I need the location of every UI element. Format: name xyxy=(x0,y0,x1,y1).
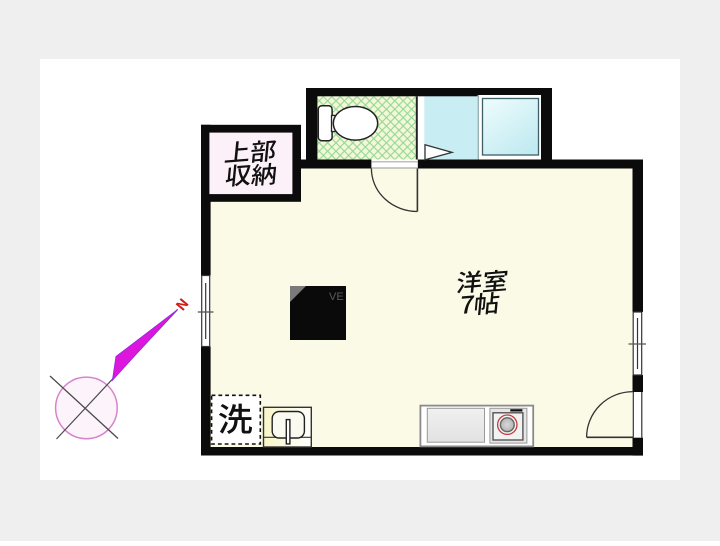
svg-text:VE: VE xyxy=(329,291,344,303)
